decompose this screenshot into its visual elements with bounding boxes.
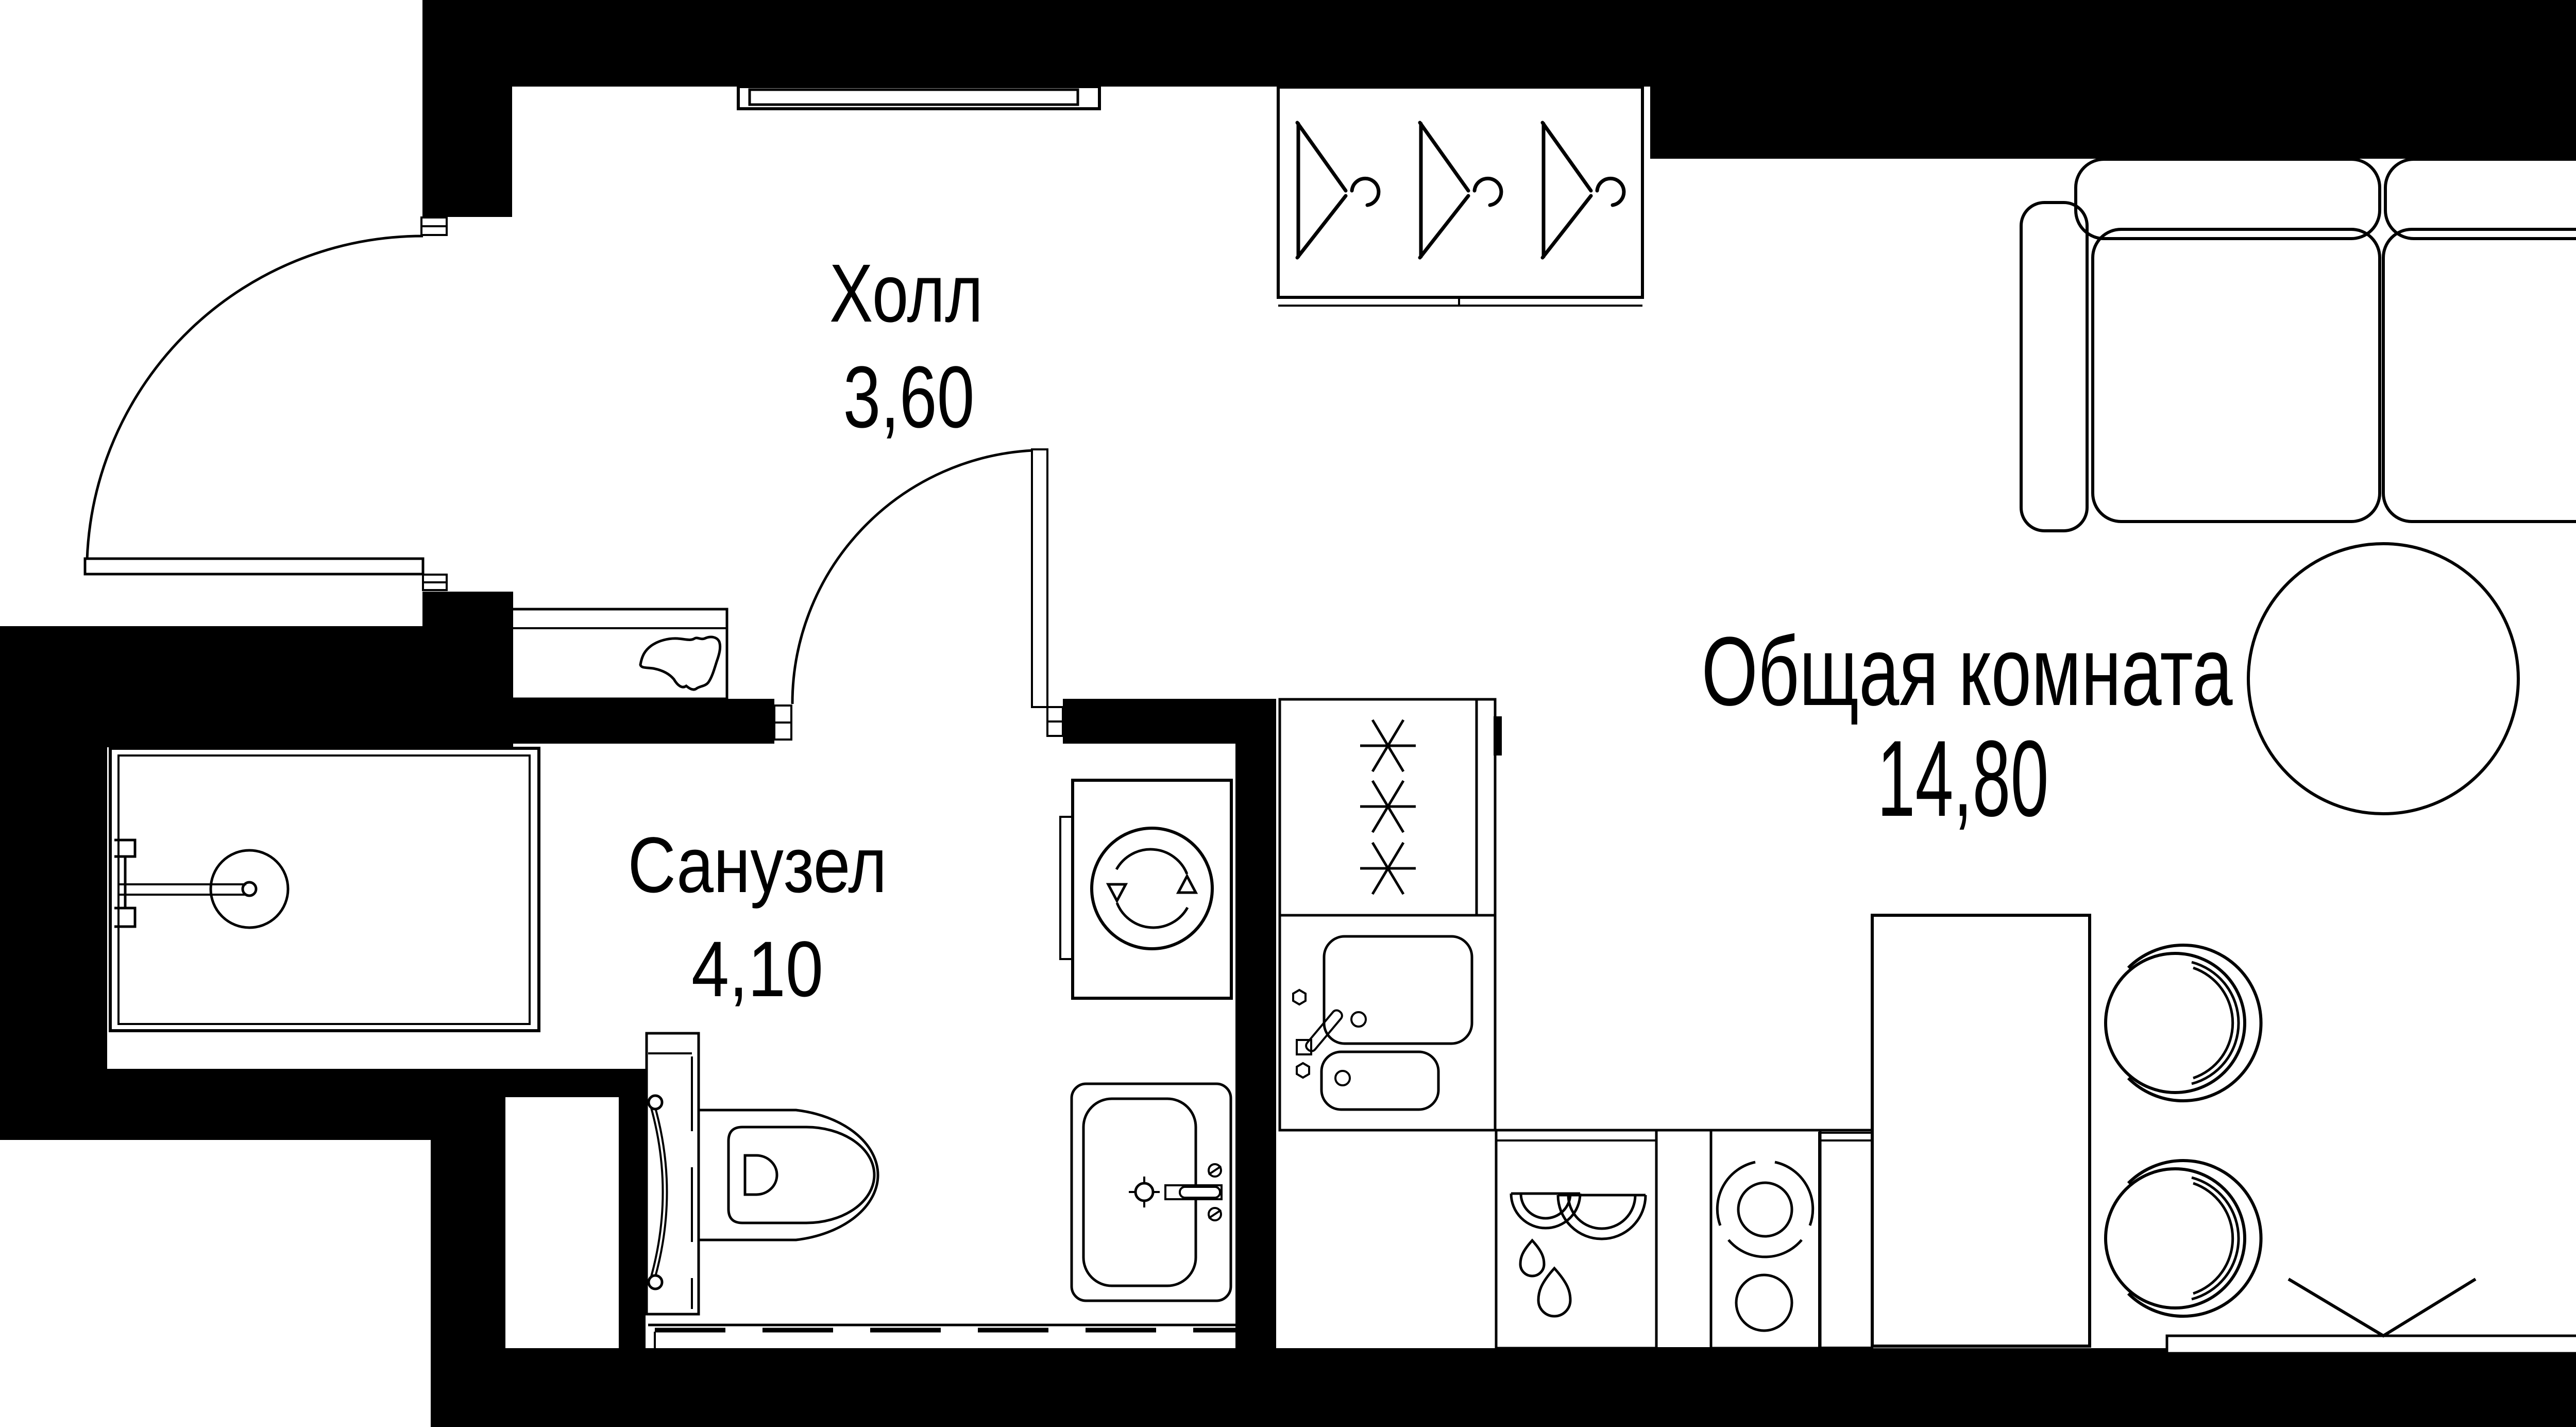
svg-text:Санузел: Санузел (628, 821, 887, 909)
svg-text:Общая комната: Общая комната (1702, 617, 2233, 726)
svg-text:3,60: 3,60 (843, 348, 975, 446)
svg-text:Холл: Холл (829, 247, 983, 339)
svg-text:14,80: 14,80 (1877, 718, 2049, 839)
svg-text:4,10: 4,10 (691, 925, 823, 1013)
